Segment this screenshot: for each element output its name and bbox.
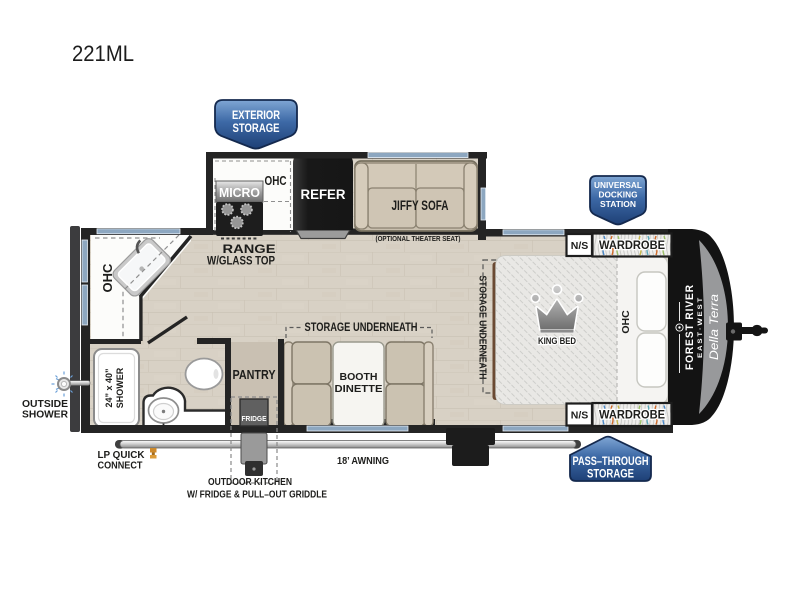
- svg-text:N/S: N/S: [571, 410, 589, 422]
- svg-text:UNIVERSAL: UNIVERSAL: [594, 180, 642, 190]
- svg-text:WARDROBE: WARDROBE: [599, 410, 665, 422]
- svg-text:N/S: N/S: [571, 240, 589, 252]
- svg-text:SHOWER: SHOWER: [115, 367, 125, 408]
- svg-text:W/ FRIDGE & PULL–OUT GRIDDLE: W/ FRIDGE & PULL–OUT GRIDDLE: [187, 489, 327, 501]
- svg-text:JIFFY SOFA: JIFFY SOFA: [392, 198, 449, 213]
- svg-text:OHC: OHC: [100, 263, 115, 293]
- svg-text:OUTDOOR KITCHEN: OUTDOOR KITCHEN: [208, 476, 292, 488]
- svg-text:OHC: OHC: [265, 173, 287, 188]
- svg-text:STORAGE UNDERNEATH: STORAGE UNDERNEATH: [477, 276, 489, 380]
- svg-text:KING BED: KING BED: [538, 336, 576, 346]
- svg-text:Della Terra: Della Terra: [707, 294, 721, 360]
- svg-text:STATION: STATION: [600, 199, 636, 209]
- svg-text:DINETTE: DINETTE: [335, 383, 383, 395]
- svg-text:REFER: REFER: [301, 187, 346, 202]
- svg-text:SHOWER: SHOWER: [22, 409, 68, 421]
- svg-text:PANTRY: PANTRY: [233, 368, 277, 382]
- svg-text:PASS–THROUGH: PASS–THROUGH: [573, 456, 649, 468]
- svg-text:EXTERIOR: EXTERIOR: [232, 110, 281, 122]
- svg-text:(OPTIONAL THEATER SEAT): (OPTIONAL THEATER SEAT): [376, 234, 461, 243]
- svg-text:221ML: 221ML: [72, 41, 134, 66]
- svg-text:CONNECT: CONNECT: [98, 460, 144, 472]
- svg-text:FRIDGE: FRIDGE: [242, 414, 267, 423]
- svg-text:FOREST RIVER: FOREST RIVER: [684, 284, 696, 370]
- svg-text:EAST·WEST: EAST·WEST: [697, 296, 704, 358]
- svg-text:24” x 40”: 24” x 40”: [104, 368, 114, 407]
- svg-text:OHC: OHC: [620, 310, 632, 334]
- svg-text:BOOTH: BOOTH: [340, 371, 378, 383]
- svg-text:STORAGE: STORAGE: [233, 123, 280, 135]
- svg-text:18’ AWNING: 18’ AWNING: [337, 455, 389, 467]
- svg-text:MICRO: MICRO: [219, 186, 260, 200]
- svg-text:W/GLASS TOP: W/GLASS TOP: [207, 256, 275, 268]
- svg-text:STORAGE: STORAGE: [587, 469, 634, 481]
- svg-text:STORAGE UNDERNEATH: STORAGE UNDERNEATH: [305, 322, 418, 334]
- svg-text:WARDROBE: WARDROBE: [599, 240, 665, 252]
- svg-text:RANGE: RANGE: [223, 244, 276, 256]
- svg-text:DOCKING: DOCKING: [599, 190, 638, 200]
